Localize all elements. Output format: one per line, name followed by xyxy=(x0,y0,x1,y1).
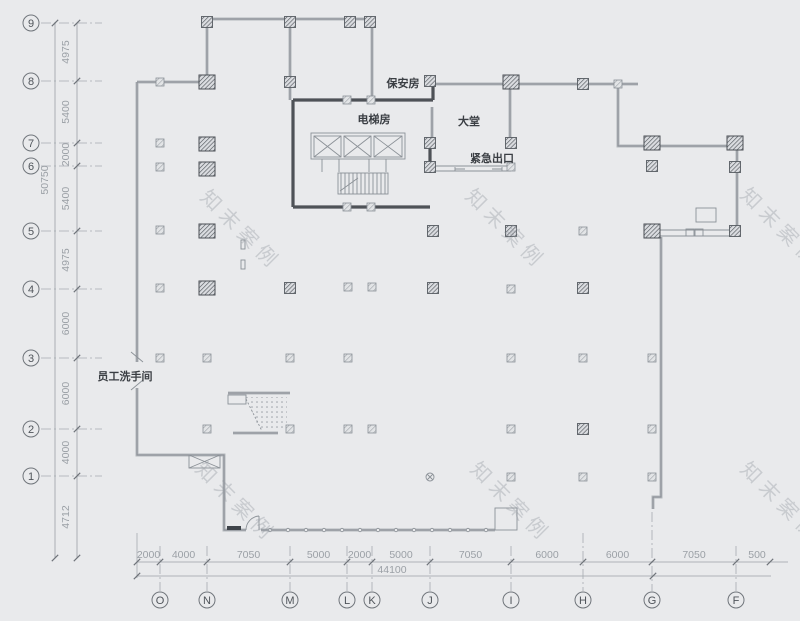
column xyxy=(425,76,436,87)
watermark-text: 知末案例 xyxy=(461,185,551,275)
column xyxy=(199,281,215,295)
column xyxy=(199,224,215,238)
dim-label: 4712 xyxy=(60,505,72,529)
dim-label: 4975 xyxy=(60,248,72,272)
escalator xyxy=(228,395,287,431)
column xyxy=(614,80,622,88)
bottom-axis-bubbles: O N M L K J I H G F xyxy=(152,592,744,608)
column xyxy=(156,163,164,171)
column xyxy=(579,227,587,235)
column xyxy=(156,78,164,86)
column xyxy=(199,75,215,89)
watermark-text: 知末案例 xyxy=(736,458,800,548)
column xyxy=(730,162,741,173)
watermark-text: 知末案例 xyxy=(736,184,800,274)
room-label-security: 保安房 xyxy=(386,76,420,90)
column xyxy=(507,285,515,293)
axis-bubble: J xyxy=(427,595,433,607)
column xyxy=(343,96,351,104)
column xyxy=(345,17,356,28)
room-label-lobby: 大堂 xyxy=(458,114,480,128)
dim-label: 6000 xyxy=(60,382,72,406)
axis-bubble: G xyxy=(648,595,657,607)
column xyxy=(428,283,439,294)
column xyxy=(156,139,164,147)
watermarks: 知末案例 知末案例 知末案例 知末案例 知末案例 知末案例 xyxy=(191,184,800,548)
dim-label: 7050 xyxy=(237,549,261,561)
column xyxy=(730,226,741,237)
column xyxy=(343,203,351,211)
column xyxy=(727,136,743,150)
axis-bubble: K xyxy=(368,595,376,607)
axis-bubble: F xyxy=(733,595,740,607)
dim-label: 2000 xyxy=(137,549,161,561)
column xyxy=(507,473,515,481)
plan-walls xyxy=(131,19,737,532)
dim-label: 2000 xyxy=(348,549,372,561)
axis-bubble: N xyxy=(203,595,211,607)
column xyxy=(425,138,436,149)
column xyxy=(156,226,164,234)
dim-label: 5000 xyxy=(389,549,413,561)
column xyxy=(579,473,587,481)
column xyxy=(647,161,658,172)
column xyxy=(503,75,519,89)
axis-bubble: 2 xyxy=(28,424,34,436)
dim-label: 7050 xyxy=(682,549,706,561)
dim-label: 4975 xyxy=(60,40,72,64)
column xyxy=(203,425,211,433)
column xyxy=(286,425,294,433)
column xyxy=(579,354,587,362)
axis-bubble: I xyxy=(509,595,512,607)
column xyxy=(285,283,296,294)
column xyxy=(199,137,215,151)
axis-bubble: 9 xyxy=(28,18,34,30)
column xyxy=(286,354,294,362)
column xyxy=(644,136,660,150)
room-label-staff-restroom: 员工洗手间 xyxy=(98,369,153,383)
axis-bubble: 7 xyxy=(28,138,34,150)
dim-label: 4000 xyxy=(172,549,196,561)
axis-bubble: 3 xyxy=(28,353,34,365)
column xyxy=(425,162,436,173)
dim-label: 4000 xyxy=(60,441,72,465)
column xyxy=(648,473,656,481)
room-label-emergency-exit: 紧急出口 xyxy=(470,151,514,165)
axis-bubble: 4 xyxy=(28,284,34,296)
dim-label: 5400 xyxy=(60,100,72,124)
axis-bubble: M xyxy=(285,595,294,607)
reception-desk xyxy=(696,208,716,222)
dim-label: 5000 xyxy=(307,549,331,561)
column xyxy=(644,224,660,238)
column xyxy=(368,425,376,433)
axis-bubble: 8 xyxy=(28,76,34,88)
room-label-elevator: 电梯房 xyxy=(358,112,391,126)
dim-label: 6000 xyxy=(535,549,559,561)
floor-plan-page: { "left_axis": { "bubbles": ["9","8","7"… xyxy=(0,0,800,621)
door-mat xyxy=(227,526,241,530)
column xyxy=(344,283,352,291)
column xyxy=(285,17,296,28)
axis-bubble: O xyxy=(156,595,165,607)
column xyxy=(344,354,352,362)
column xyxy=(368,283,376,291)
watermark-text: 知末案例 xyxy=(191,458,281,548)
floor-marker xyxy=(426,473,434,481)
elevator-shaft xyxy=(344,136,371,157)
column xyxy=(285,77,296,88)
core-stair xyxy=(338,173,388,194)
column xyxy=(648,354,656,362)
exit-corridor xyxy=(436,166,511,171)
column xyxy=(156,354,164,362)
column xyxy=(648,425,656,433)
total-dim-label: 50750 xyxy=(39,165,51,194)
axis-bubble: 5 xyxy=(28,226,34,238)
left-axis-bubbles: 9 8 7 6 5 4 3 2 1 xyxy=(23,15,39,484)
axis-bubble: H xyxy=(579,595,587,607)
dim-label: 2000 xyxy=(60,143,72,167)
dim-label: 500 xyxy=(748,549,766,561)
left-dim-labels: 4975 5400 2000 5400 4975 6000 6000 4000 … xyxy=(39,40,72,529)
axis-bubble: 1 xyxy=(28,471,34,483)
axis-bubble: L xyxy=(344,595,350,607)
column xyxy=(428,226,439,237)
column xyxy=(365,17,376,28)
axis-bubble: 6 xyxy=(28,161,34,173)
elevator-shaft xyxy=(374,136,402,157)
dim-label: 6000 xyxy=(60,312,72,336)
column xyxy=(202,17,213,28)
elevator-core xyxy=(311,133,405,194)
column xyxy=(156,284,164,292)
column xyxy=(506,138,517,149)
column xyxy=(578,424,589,435)
dim-label: 6000 xyxy=(606,549,630,561)
furniture-marks xyxy=(241,208,716,481)
dim-label: 5400 xyxy=(60,187,72,211)
column xyxy=(203,354,211,362)
total-dim-label: 44100 xyxy=(377,564,406,576)
column xyxy=(367,96,375,104)
column xyxy=(507,425,515,433)
column xyxy=(578,283,589,294)
column xyxy=(507,354,515,362)
column xyxy=(344,425,352,433)
column xyxy=(367,203,375,211)
watermark-text: 知末案例 xyxy=(466,458,556,548)
dim-label: 7050 xyxy=(459,549,483,561)
column xyxy=(199,162,215,176)
bottom-dim-labels: 2000 4000 7050 5000 2000 5000 7050 6000 … xyxy=(137,549,766,576)
column xyxy=(578,79,589,90)
elevator-shaft xyxy=(314,136,341,157)
left-axis: 9 8 7 6 5 4 3 2 1 4975 5400 2000 5400 49… xyxy=(23,15,102,561)
floor-plan-canvas: 9 8 7 6 5 4 3 2 1 4975 5400 2000 5400 49… xyxy=(0,0,800,621)
